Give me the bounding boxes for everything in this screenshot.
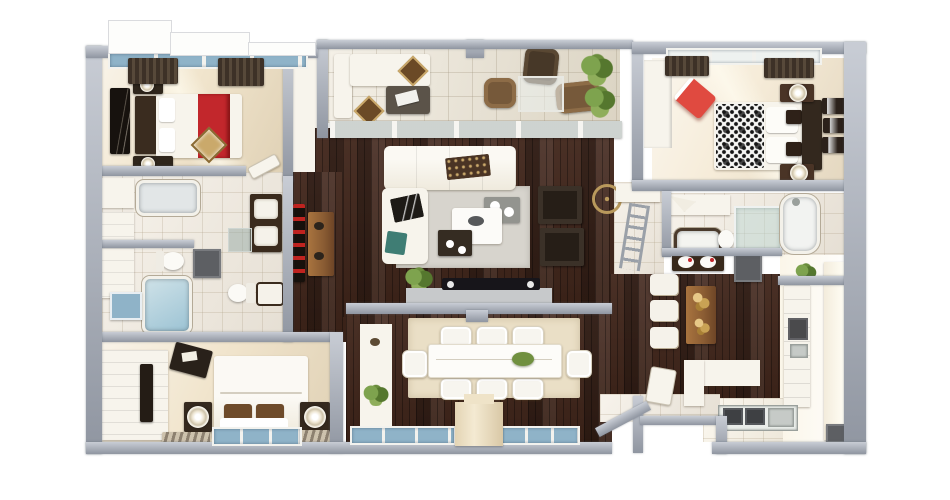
- wardrobe: [102, 350, 168, 440]
- bathroom-cabinet: [102, 178, 134, 208]
- console-decor: [314, 222, 324, 230]
- red-soap: [688, 258, 692, 262]
- shower-square: [193, 249, 221, 278]
- picture-frame: [823, 118, 845, 133]
- glass-panel: [228, 228, 252, 252]
- toilet-tank: [246, 283, 255, 303]
- wall-divider-stem: [466, 310, 488, 322]
- tv-flat: [442, 278, 540, 290]
- picture-frame: [822, 98, 846, 114]
- headboard: [802, 100, 822, 170]
- chimney-pillar-step: [464, 394, 494, 404]
- curtain: [218, 58, 264, 86]
- red-soap: [710, 258, 714, 262]
- outer-wall-left: [86, 46, 102, 454]
- wall-balcony-left: [317, 40, 328, 138]
- sink: [256, 282, 284, 306]
- exterior-step: [170, 32, 250, 56]
- green-centerpiece: [512, 352, 534, 366]
- bathtub: [136, 180, 200, 216]
- wall-entry-bottom: [640, 416, 724, 425]
- gold-flower-decor: [690, 290, 712, 312]
- bar-stool: [650, 274, 678, 295]
- armchair: [538, 186, 582, 224]
- balcony-plant: [584, 84, 616, 118]
- dining-chair: [566, 350, 592, 378]
- bar-stool: [650, 327, 678, 348]
- headboard: [135, 96, 157, 154]
- wall-art: [110, 88, 130, 154]
- wine-rack: [293, 204, 305, 282]
- duvet-fold: [220, 392, 302, 394]
- disc-lamp: [304, 406, 326, 428]
- teal-pillow: [385, 231, 408, 256]
- side-table-plate: [504, 207, 514, 217]
- toilet: [162, 252, 184, 270]
- vanity-sink: [254, 226, 278, 246]
- tray-cup: [446, 240, 454, 248]
- tray-cup: [458, 246, 466, 254]
- freestanding-tub: [780, 194, 820, 254]
- gray-shower-mat: [734, 254, 762, 282]
- toilet-tank: [156, 251, 164, 271]
- vanity-sink: [254, 199, 278, 219]
- window-dining-left: [350, 426, 456, 445]
- wall-bathroom-divider: [102, 240, 194, 248]
- bed-pillow: [159, 128, 175, 152]
- dining-chair: [402, 350, 428, 378]
- wall-bedroom2-bottom: [632, 180, 846, 191]
- built-in-microwave: [790, 344, 808, 358]
- built-in-oven: [788, 318, 808, 340]
- closet-strip-bedroom-top-left: [293, 58, 317, 172]
- wicker-chair: [484, 78, 516, 108]
- dining-table: [428, 344, 562, 378]
- wall-bedroom3-right: [330, 332, 343, 453]
- balcony-plant: [580, 52, 614, 86]
- outer-wall-bottom-right: [712, 442, 866, 454]
- tv-speaker: [447, 281, 454, 288]
- buffet-handle: [370, 338, 380, 346]
- window-dining-right: [500, 426, 580, 445]
- damask-throw: [716, 104, 764, 168]
- tub-faucet: [792, 198, 800, 206]
- toilet: [718, 230, 734, 249]
- toilet: [228, 284, 248, 302]
- outer-wall-right: [844, 42, 866, 454]
- bright-cabinet-wall: [824, 262, 844, 440]
- wall-pantry-bottom: [778, 276, 846, 285]
- window-bedroom3: [212, 427, 302, 446]
- dark-bolster: [786, 110, 802, 124]
- exterior-step: [108, 20, 172, 54]
- picture-frame: [822, 137, 846, 153]
- buffet-plant: [362, 384, 390, 406]
- l-counter-leg: [684, 360, 704, 406]
- wall-bedroom1-bottom: [102, 166, 246, 176]
- balcony-glass-railing: [330, 121, 622, 138]
- bar-stool: [650, 300, 678, 321]
- bathroom-drawers: [102, 212, 134, 298]
- blue-bath-mat: [110, 292, 142, 320]
- cooktop-burner: [745, 408, 765, 425]
- table-runner-line: [436, 359, 552, 360]
- floor-plan-render: [0, 0, 950, 500]
- wall-bedroom1-right: [283, 52, 293, 182]
- chimney-pillar: [455, 402, 503, 446]
- gold-flower-decor: [692, 316, 712, 336]
- patterned-throw: [445, 154, 491, 180]
- curtain: [128, 58, 178, 84]
- curtain: [665, 56, 709, 76]
- tv-speaker: [527, 281, 534, 288]
- glass-table: [518, 76, 564, 112]
- disc-lamp: [789, 84, 807, 102]
- glass-shower: [734, 206, 782, 254]
- exterior-step: [248, 42, 316, 56]
- console-decor: [314, 252, 324, 260]
- wardrobe-mirror: [140, 364, 153, 422]
- armchair: [540, 228, 584, 266]
- bed-pillow: [159, 98, 175, 122]
- dining-chair: [512, 378, 544, 400]
- coffee-table-plate: [468, 216, 484, 226]
- soaking-tub: [142, 276, 192, 334]
- wall-bedroom3-top: [102, 332, 332, 342]
- kitchen-sink: [768, 408, 794, 427]
- curtain: [764, 58, 814, 78]
- disc-lamp: [187, 406, 209, 428]
- wall-bathroom-right-bottom: [662, 248, 782, 256]
- dark-tray-table: [438, 230, 472, 256]
- dark-bolster: [786, 142, 802, 156]
- wall-bathrooms-right: [283, 176, 293, 342]
- outer-wall-top-balcony: [317, 40, 633, 49]
- wall-bedroom2-left: [632, 48, 643, 188]
